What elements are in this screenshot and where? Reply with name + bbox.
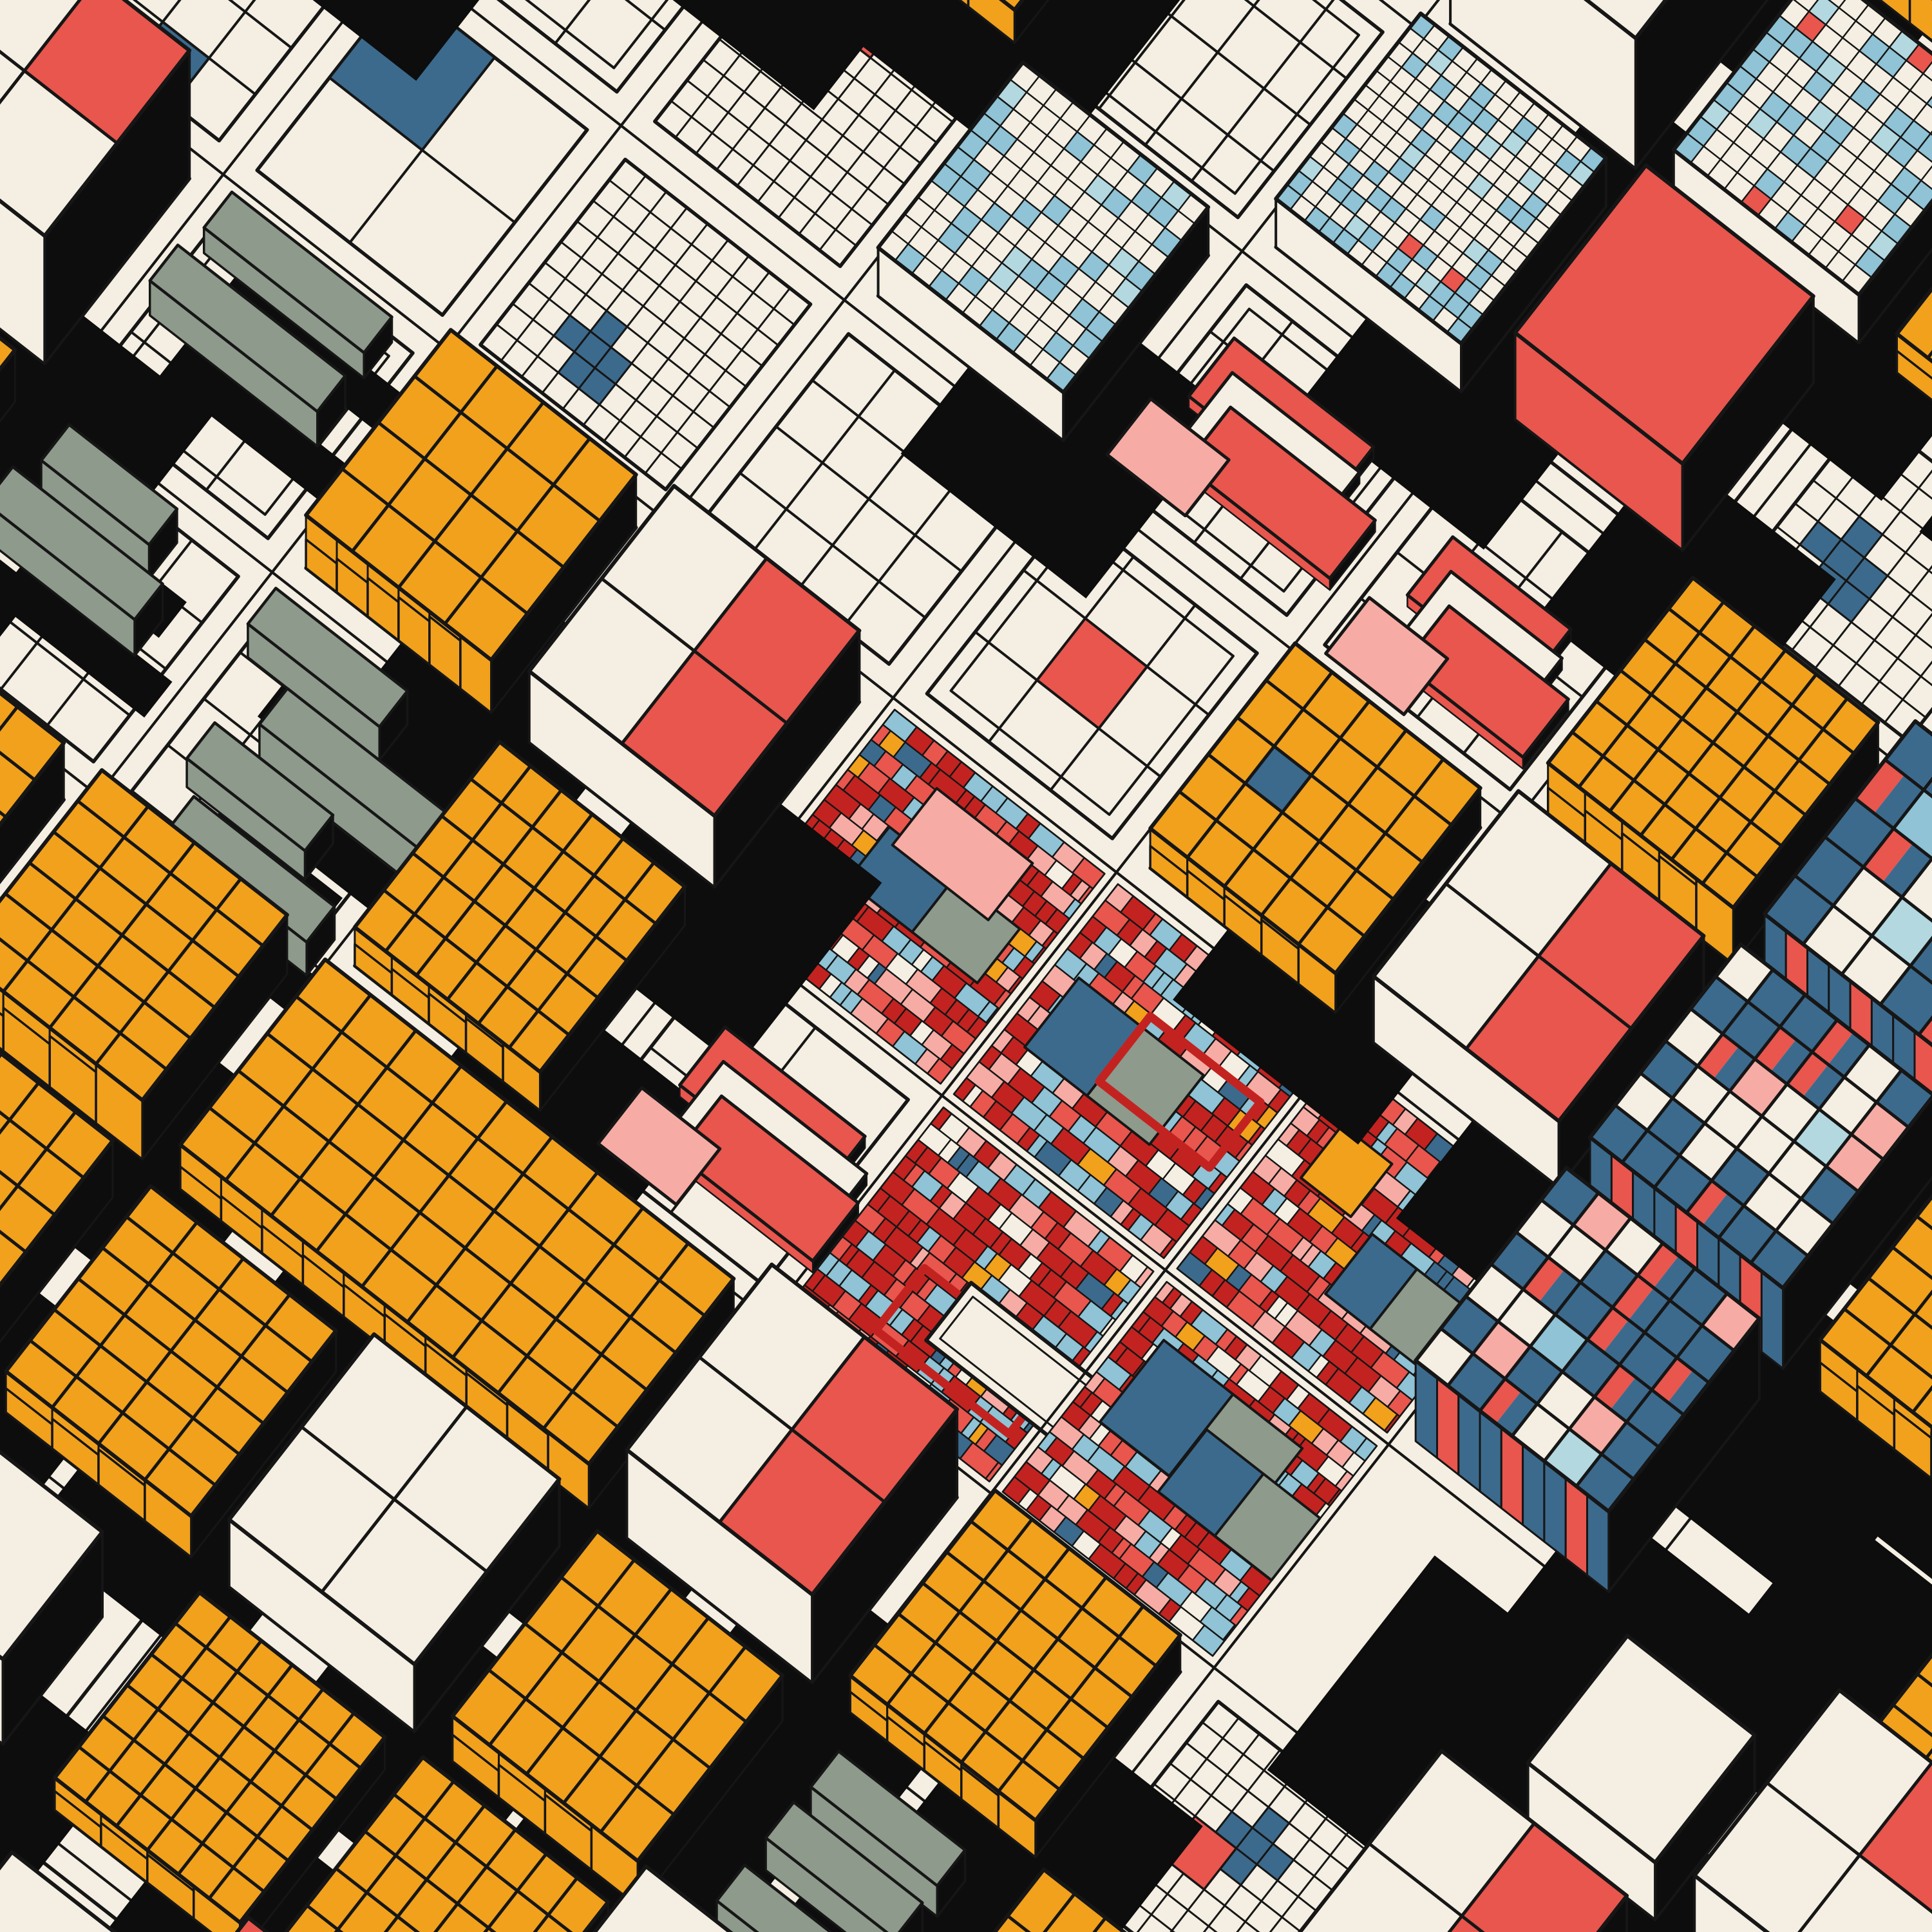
block-mosaic-slab <box>878 62 1231 599</box>
artwork-canvas <box>0 0 1932 1932</box>
isometric-artwork <box>0 0 1932 1932</box>
